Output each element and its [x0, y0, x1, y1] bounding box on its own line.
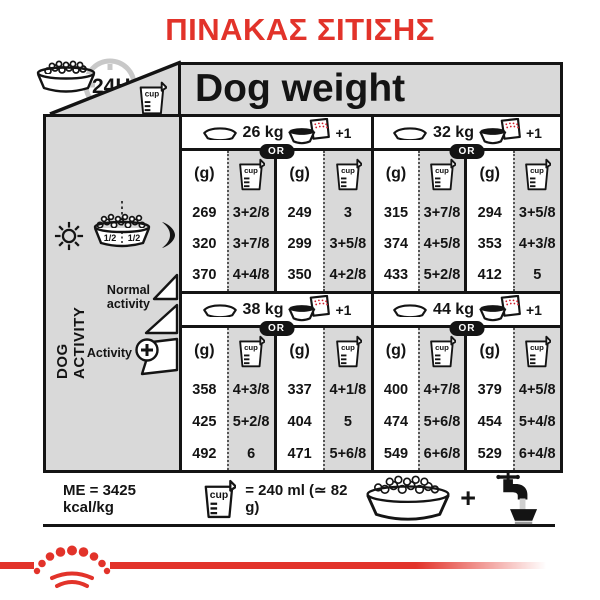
grams-cell: 315 [374, 197, 418, 228]
weight-header: 32 kg +1 OR [374, 117, 560, 151]
grams-cell: 404 [277, 406, 323, 438]
plus-one-label: +1 [526, 125, 542, 141]
cups-cell: 3+7/8 [229, 228, 274, 259]
half-left-label: 1/2 [104, 233, 117, 243]
ration-columns: (g) 315 374 433 cup [374, 151, 560, 291]
dry-bowl-icon [202, 303, 238, 317]
kibble-bowl-icon [363, 474, 453, 524]
grams-cell: 350 [277, 260, 323, 291]
ration-columns: (g) 358 425 492 cup [182, 328, 371, 470]
half-right-label: 1/2 [128, 233, 141, 243]
cups-cell: 4+4/8 [229, 260, 274, 291]
weight-header: 26 kg +1 OR [182, 117, 371, 151]
grams-cell: 400 [374, 374, 418, 406]
svg-text:cup: cup [210, 490, 228, 501]
dry-only-subtable: (g) 269 320 370 cup [182, 151, 277, 291]
dry-bowl-icon [392, 126, 428, 140]
cup-icon: cup [523, 335, 551, 368]
dog-weight-value: 44 kg [433, 301, 474, 319]
grams-column-header: (g) [374, 328, 418, 374]
grams-cell: 294 [467, 197, 513, 228]
grams-cell: 454 [467, 406, 513, 438]
wet-pouch-bowl-icon [479, 295, 521, 322]
grams-cell: 474 [374, 406, 418, 438]
grams-cell: 374 [374, 228, 418, 259]
ration-columns: (g) 269 320 370 cup [182, 151, 371, 291]
mix-subtable: (g) 379 454 529 cup [467, 328, 560, 470]
half-half-bowl-icon: 1/2 1/2 [86, 201, 158, 265]
cups-cell: 4+7/8 [420, 374, 464, 406]
grams-cell: 358 [182, 374, 227, 406]
grams-cell: 337 [277, 374, 323, 406]
svg-text:cup: cup [435, 165, 449, 174]
sun-icon [54, 221, 84, 251]
wet-pouch-bowl-icon [288, 118, 330, 145]
brand-line-right [110, 562, 560, 569]
footer-info-strip: ME = 3425 kcal/kg cup = 240 ml (≃ 82 g) … [43, 473, 555, 527]
svg-text:cup: cup [244, 165, 258, 174]
wet-pouch-bowl-icon [288, 295, 330, 322]
cup-icon: cup [237, 158, 265, 191]
cup-icon: cup [428, 335, 456, 368]
cup-equivalence-label: = 240 ml (≃ 82 g) [245, 481, 363, 516]
or-badge: OR [450, 321, 485, 336]
cups-cell: 5+6/8 [325, 438, 371, 470]
cup-icon: cup [202, 477, 236, 521]
grams-cell: 433 [374, 260, 418, 291]
dry-bowl-icon [392, 303, 428, 317]
wet-pouch-bowl-icon [479, 118, 521, 145]
plus-one-label: +1 [526, 302, 542, 318]
svg-text:cup: cup [530, 165, 544, 174]
weight-section-32kg: 32 kg +1 OR (g) 315 [371, 117, 560, 291]
brand-line-left [0, 562, 34, 569]
grams-cell: 299 [277, 228, 323, 259]
weight-section-26kg: 26 kg +1 OR (g) 269 [182, 117, 371, 291]
svg-text:cup: cup [530, 342, 544, 351]
cups-cell: 4+2/8 [325, 260, 371, 291]
weight-header: 38 kg +1 OR [182, 294, 371, 328]
activity-level-wedges-icon [139, 273, 179, 381]
plus-one-label: +1 [335, 302, 351, 318]
cup-icon: cup [334, 158, 362, 191]
weight-header: 44 kg +1 OR [374, 294, 560, 328]
cups-cell: 3+2/8 [229, 197, 274, 228]
dry-only-subtable: (g) 400 474 549 cup [374, 328, 467, 470]
grams-cell: 370 [182, 260, 227, 291]
grams-cell: 353 [467, 228, 513, 259]
activity-plus-icon [134, 337, 160, 363]
cups-cell: 5+2/8 [420, 260, 464, 291]
grams-cell: 492 [182, 438, 227, 470]
weight-section-44kg: 44 kg +1 OR (g) 400 [371, 291, 560, 470]
grams-column-header: (g) [374, 151, 418, 197]
grams-cell: 379 [467, 374, 513, 406]
grams-cell: 269 [182, 197, 227, 228]
ration-columns: (g) 400 474 549 cup [374, 328, 560, 470]
cups-cell: 5+2/8 [229, 406, 274, 438]
mix-subtable: (g) 337 404 471 cup [277, 328, 372, 470]
or-badge: OR [259, 144, 294, 159]
feeding-table-panel: ΠΙΝΑΚΑΣ ΣΙΤΙΣΗΣ 24H cup Dog weight [0, 0, 600, 600]
grams-column-header: (g) [182, 151, 227, 197]
svg-text:cup: cup [244, 342, 258, 351]
cup-icon: cup [428, 158, 456, 191]
cups-cell: 6+6/8 [420, 438, 464, 470]
cups-cell: 4+3/8 [515, 228, 561, 259]
cups-cell: 4+1/8 [325, 374, 371, 406]
svg-text:cup: cup [435, 342, 449, 351]
dry-bowl-icon [202, 126, 238, 140]
cups-cell: 4+5/8 [515, 374, 561, 406]
cups-cell: 5 [515, 260, 561, 291]
moon-icon [156, 221, 176, 249]
grams-cell: 249 [277, 197, 323, 228]
grams-cell: 412 [467, 260, 513, 291]
cups-cell: 4+5/8 [420, 228, 464, 259]
weight-section-38kg: 38 kg +1 OR (g) 358 [182, 291, 371, 470]
grams-cell: 425 [182, 406, 227, 438]
activity-plus-label: Activity [72, 346, 132, 360]
or-badge: OR [450, 144, 485, 159]
cup-icon-label: cup [145, 89, 159, 98]
water-faucet-bowl-icon [483, 472, 539, 525]
grams-cell: 471 [277, 438, 323, 470]
cup-icon: cup [137, 81, 167, 115]
grams-cell: 320 [182, 228, 227, 259]
dog-weight-value: 38 kg [243, 301, 284, 319]
cups-cell: 3+5/8 [325, 228, 371, 259]
cups-cell: 6+4/8 [515, 438, 561, 470]
dog-weight-header: Dog weight [178, 62, 563, 114]
plus-one-label: +1 [335, 125, 351, 141]
cups-cell: 3+7/8 [420, 197, 464, 228]
cups-cell: 5+6/8 [420, 406, 464, 438]
cups-cell: 4+3/8 [229, 374, 274, 406]
cup-icon: cup [237, 335, 265, 368]
dry-only-subtable: (g) 315 374 433 cup [374, 151, 467, 291]
or-badge: OR [259, 321, 294, 336]
plus-symbol: + [460, 483, 476, 514]
dry-only-subtable: (g) 358 425 492 cup [182, 328, 277, 470]
royal-canin-crown-logo [33, 543, 111, 593]
cups-cell: 6 [229, 438, 274, 470]
mix-subtable: (g) 249 299 350 cup [277, 151, 372, 291]
metabolizable-energy-label: ME = 3425 kcal/kg [63, 482, 188, 516]
mix-subtable: (g) 294 353 412 cup [467, 151, 560, 291]
cup-icon: cup [334, 335, 362, 368]
svg-text:cup: cup [341, 342, 355, 351]
cups-cell: 5+4/8 [515, 406, 561, 438]
grams-cell: 549 [374, 438, 418, 470]
page-title: ΠΙΝΑΚΑΣ ΣΙΤΙΣΗΣ [0, 12, 600, 48]
cup-icon: cup [523, 158, 551, 191]
grams-cell: 529 [467, 438, 513, 470]
feeding-table: 1/2 1/2 DOG ACTIVITY Normal activity Act… [43, 114, 563, 473]
cups-cell: 3 [325, 197, 371, 228]
cups-cell: 3+5/8 [515, 197, 561, 228]
cups-cell: 5 [325, 406, 371, 438]
grams-column-header: (g) [182, 328, 227, 374]
dog-activity-sidebar: 1/2 1/2 DOG ACTIVITY Normal activity Act… [46, 117, 182, 470]
dog-weight-value: 26 kg [243, 124, 284, 142]
svg-text:cup: cup [341, 165, 355, 174]
dog-weight-value: 32 kg [433, 124, 474, 142]
